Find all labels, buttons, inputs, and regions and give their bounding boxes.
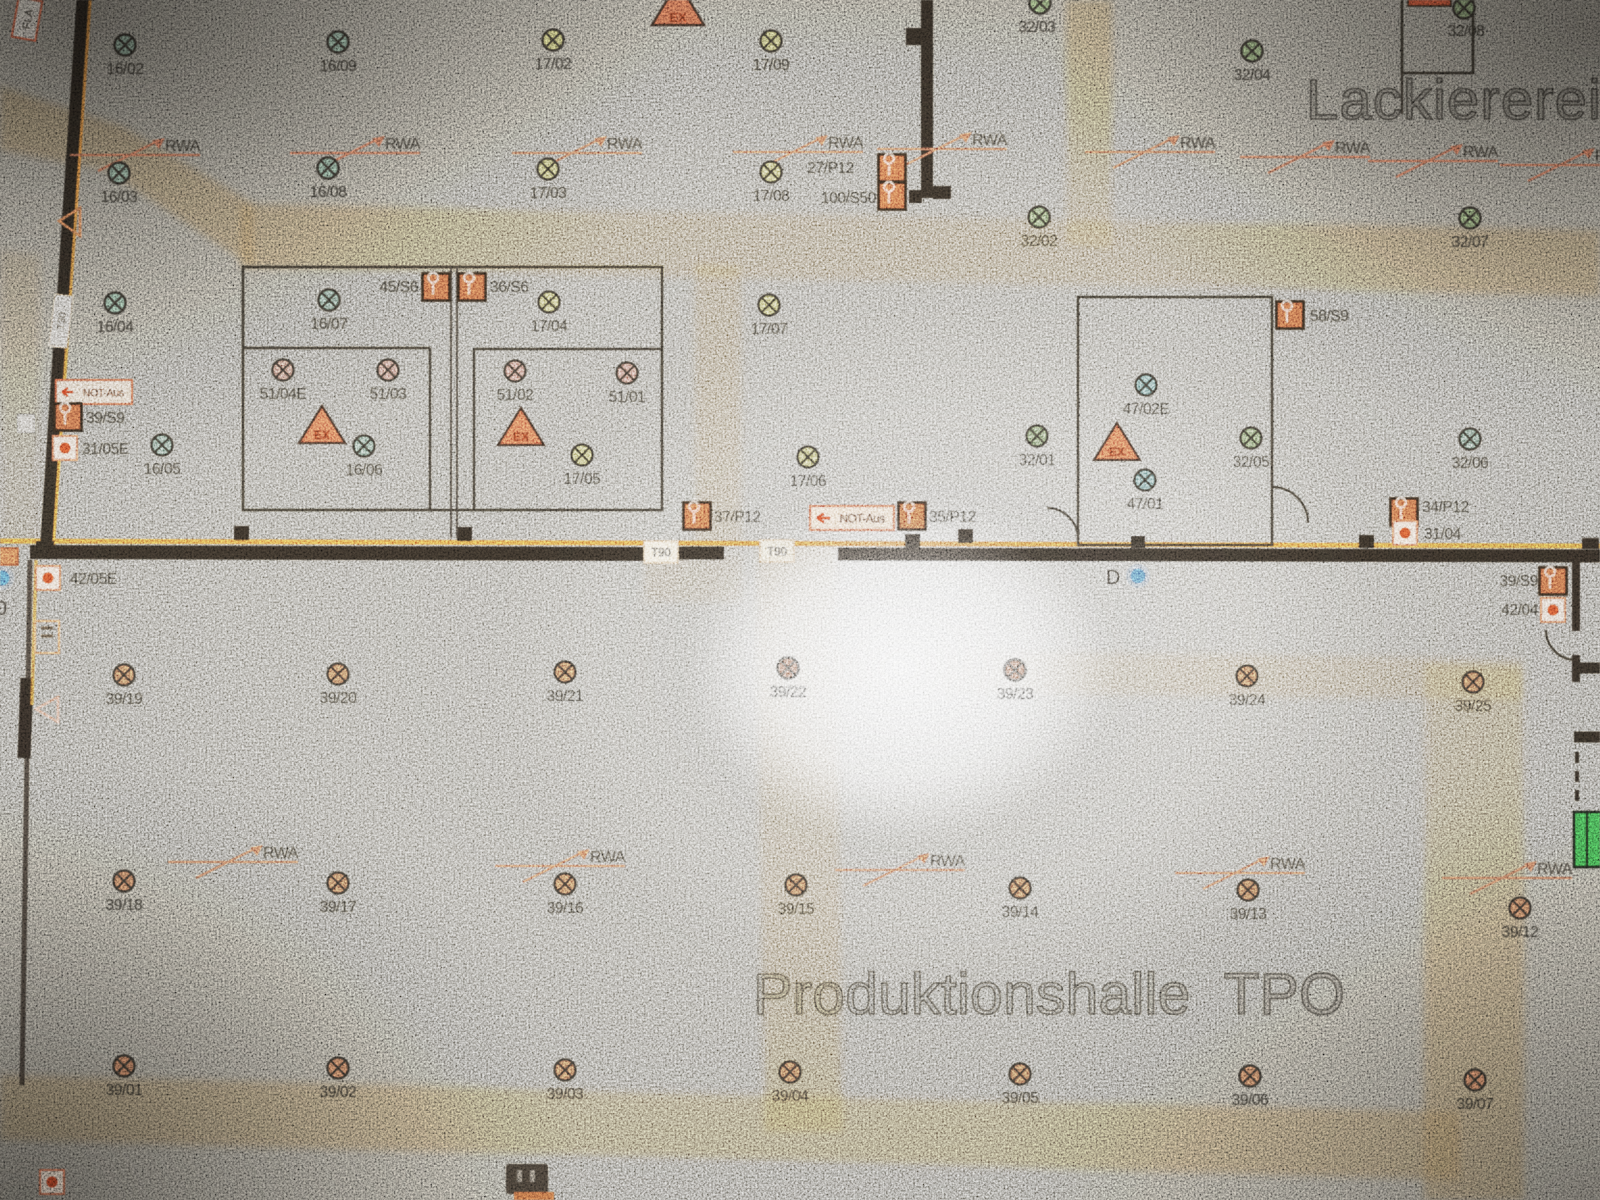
svg-text:39/20: 39/20 xyxy=(320,690,358,707)
svg-text:17/07: 17/07 xyxy=(751,321,788,338)
svg-text:32/08: 32/08 xyxy=(1448,23,1485,40)
svg-text:D: D xyxy=(1106,567,1120,589)
svg-text:32/01: 32/01 xyxy=(1019,452,1056,469)
svg-text:39/19: 39/19 xyxy=(106,691,143,708)
svg-text:39/15: 39/15 xyxy=(778,901,815,918)
svg-text:39/16: 39/16 xyxy=(547,900,584,917)
svg-text:39/02: 39/02 xyxy=(320,1084,357,1101)
svg-text:NOT-Aus: NOT-Aus xyxy=(82,388,124,400)
svg-text:39/14: 39/14 xyxy=(1002,904,1040,921)
svg-text:39/07: 39/07 xyxy=(1457,1096,1494,1113)
svg-text:16/07: 16/07 xyxy=(311,316,348,333)
svg-text:36/S6: 36/S6 xyxy=(490,279,529,296)
svg-text:17/06: 17/06 xyxy=(790,473,827,490)
svg-text:16/08: 16/08 xyxy=(310,184,347,201)
svg-text:32/06: 32/06 xyxy=(1452,455,1489,472)
svg-text:Produktionshalle TPO: Produktionshalle TPO xyxy=(753,962,1345,1027)
svg-text:32/04: 32/04 xyxy=(1234,67,1272,84)
svg-text:16/03: 16/03 xyxy=(101,189,138,206)
svg-text:39/06: 39/06 xyxy=(1232,1092,1269,1109)
svg-text:32/02: 32/02 xyxy=(1021,233,1058,250)
svg-text:32/03: 32/03 xyxy=(1019,19,1056,36)
svg-text:39/S9: 39/S9 xyxy=(86,410,125,427)
svg-text:39/23: 39/23 xyxy=(997,686,1034,703)
svg-text:51/01: 51/01 xyxy=(609,389,646,406)
svg-text:45/S6: 45/S6 xyxy=(379,279,418,296)
svg-text:39/03: 39/03 xyxy=(547,1086,584,1103)
svg-text:51/02: 51/02 xyxy=(497,387,534,404)
svg-text:17/09: 17/09 xyxy=(753,57,790,74)
svg-text:17/05: 17/05 xyxy=(564,471,601,488)
svg-text:100/S50: 100/S50 xyxy=(821,190,877,207)
svg-text:42/05E: 42/05E xyxy=(70,571,117,588)
svg-text:17/04: 17/04 xyxy=(531,318,569,335)
svg-text:39/22: 39/22 xyxy=(770,684,807,701)
svg-text:39/18: 39/18 xyxy=(106,897,143,914)
svg-text:39/01: 39/01 xyxy=(106,1082,143,1099)
svg-text:35/P12: 35/P12 xyxy=(929,509,976,526)
svg-text:47/02E: 47/02E xyxy=(1123,401,1170,418)
svg-text:EX: EX xyxy=(669,10,687,25)
svg-text:31/04: 31/04 xyxy=(1424,526,1462,543)
svg-text:39/25: 39/25 xyxy=(1455,698,1492,715)
svg-text:39/12: 39/12 xyxy=(1502,924,1539,941)
svg-text:16/04: 16/04 xyxy=(97,319,135,336)
svg-text:16/02: 16/02 xyxy=(107,61,144,78)
svg-text:32/05: 32/05 xyxy=(1233,454,1270,471)
svg-text:42/04: 42/04 xyxy=(1501,602,1539,619)
svg-text:17/03: 17/03 xyxy=(530,185,567,202)
svg-text:32/07: 32/07 xyxy=(1452,234,1489,251)
svg-text:39/21: 39/21 xyxy=(547,688,584,705)
svg-text:16/09: 16/09 xyxy=(320,58,357,75)
svg-text:39/24: 39/24 xyxy=(1229,692,1267,709)
svg-text:17/02: 17/02 xyxy=(535,56,572,73)
svg-text:16/05: 16/05 xyxy=(144,461,181,478)
svg-text:39/04: 39/04 xyxy=(772,1088,810,1105)
svg-text:0: 0 xyxy=(0,598,7,620)
svg-text:17/08: 17/08 xyxy=(753,188,790,205)
svg-text:51/04E: 51/04E xyxy=(260,386,307,403)
svg-text:39/05: 39/05 xyxy=(1002,1090,1039,1107)
svg-text:T30: T30 xyxy=(55,311,69,331)
svg-text:37/P12: 37/P12 xyxy=(714,509,761,526)
svg-text:58/S9: 58/S9 xyxy=(1310,308,1349,325)
svg-text:31/05E: 31/05E xyxy=(82,441,129,458)
svg-text:39/13: 39/13 xyxy=(1230,906,1267,923)
svg-text:51/03: 51/03 xyxy=(370,386,407,403)
svg-text:34/P12: 34/P12 xyxy=(1422,499,1469,516)
svg-text:16/06: 16/06 xyxy=(346,462,383,479)
svg-text:47/01: 47/01 xyxy=(1127,496,1164,513)
svg-text:Lackiererei: Lackiererei xyxy=(1306,68,1600,132)
svg-text:27/P12: 27/P12 xyxy=(807,160,854,177)
svg-text:39/S9: 39/S9 xyxy=(1499,573,1538,590)
svg-text:39/17: 39/17 xyxy=(320,899,357,916)
